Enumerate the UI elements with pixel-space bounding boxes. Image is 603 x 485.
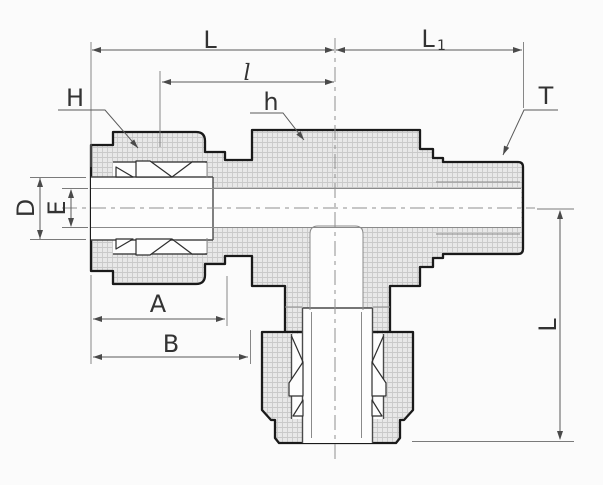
dim-label-thread-end-length: L <box>421 25 435 53</box>
leader-T <box>503 110 558 155</box>
dim-label-nut-length: A <box>150 290 167 318</box>
dim-label-nut-hex: H <box>66 84 84 112</box>
fitting-cross-section-drawing: L L 1 l H h T D E A B L <box>0 0 603 485</box>
dim-label-center-to-tube-end: l <box>243 61 250 86</box>
dim-label-tube-od: D <box>12 199 40 217</box>
dim-label-overall-length: L <box>203 26 217 54</box>
dim-label-body-hex: h <box>263 88 278 116</box>
dim-label-branch-length: L <box>534 318 562 332</box>
dim-label-male-thread: T <box>538 82 554 110</box>
dim-label-thread-end-length-subscript: 1 <box>437 38 446 54</box>
technical-drawing-page: L L 1 l H h T D E A B L <box>0 0 603 485</box>
dim-label-body-front-length: B <box>163 330 179 358</box>
dim-label-bore: E <box>43 200 71 215</box>
